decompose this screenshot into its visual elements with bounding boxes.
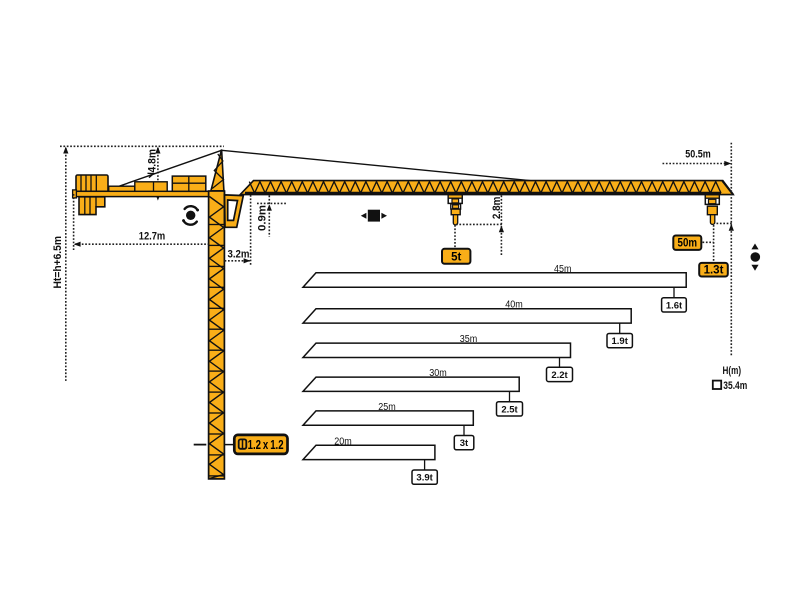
svg-text:1.9t: 1.9t [612,336,629,347]
svg-text:35.4m: 35.4m [723,380,747,392]
svg-text:20m: 20m [334,436,352,447]
svg-text:30m: 30m [429,368,447,379]
svg-text:4.8m: 4.8m [147,149,159,173]
svg-text:3.2m: 3.2m [228,249,250,261]
svg-text:1.6t: 1.6t [666,300,683,311]
svg-text:45m: 45m [554,264,572,275]
svg-text:25m: 25m [378,402,396,413]
svg-text:1.2 x 1.2: 1.2 x 1.2 [248,437,284,452]
svg-text:2.8m: 2.8m [491,196,503,219]
svg-text:Ht=h+6.5m: Ht=h+6.5m [52,236,64,289]
svg-text:1.3t: 1.3t [704,265,724,277]
svg-text:3t: 3t [460,438,469,449]
svg-text:40m: 40m [505,300,523,311]
svg-text:50m: 50m [678,238,698,250]
svg-text:35m: 35m [460,334,478,345]
svg-text:50.5m: 50.5m [685,149,711,161]
svg-text:2.5t: 2.5t [501,404,518,415]
svg-text:0.9m: 0.9m [257,205,269,231]
svg-text:H(m): H(m) [723,365,742,377]
svg-text:3.9t: 3.9t [416,473,433,484]
svg-text:5t: 5t [451,251,461,263]
svg-text:12.7m: 12.7m [139,231,166,243]
svg-text:2.2t: 2.2t [551,370,568,381]
